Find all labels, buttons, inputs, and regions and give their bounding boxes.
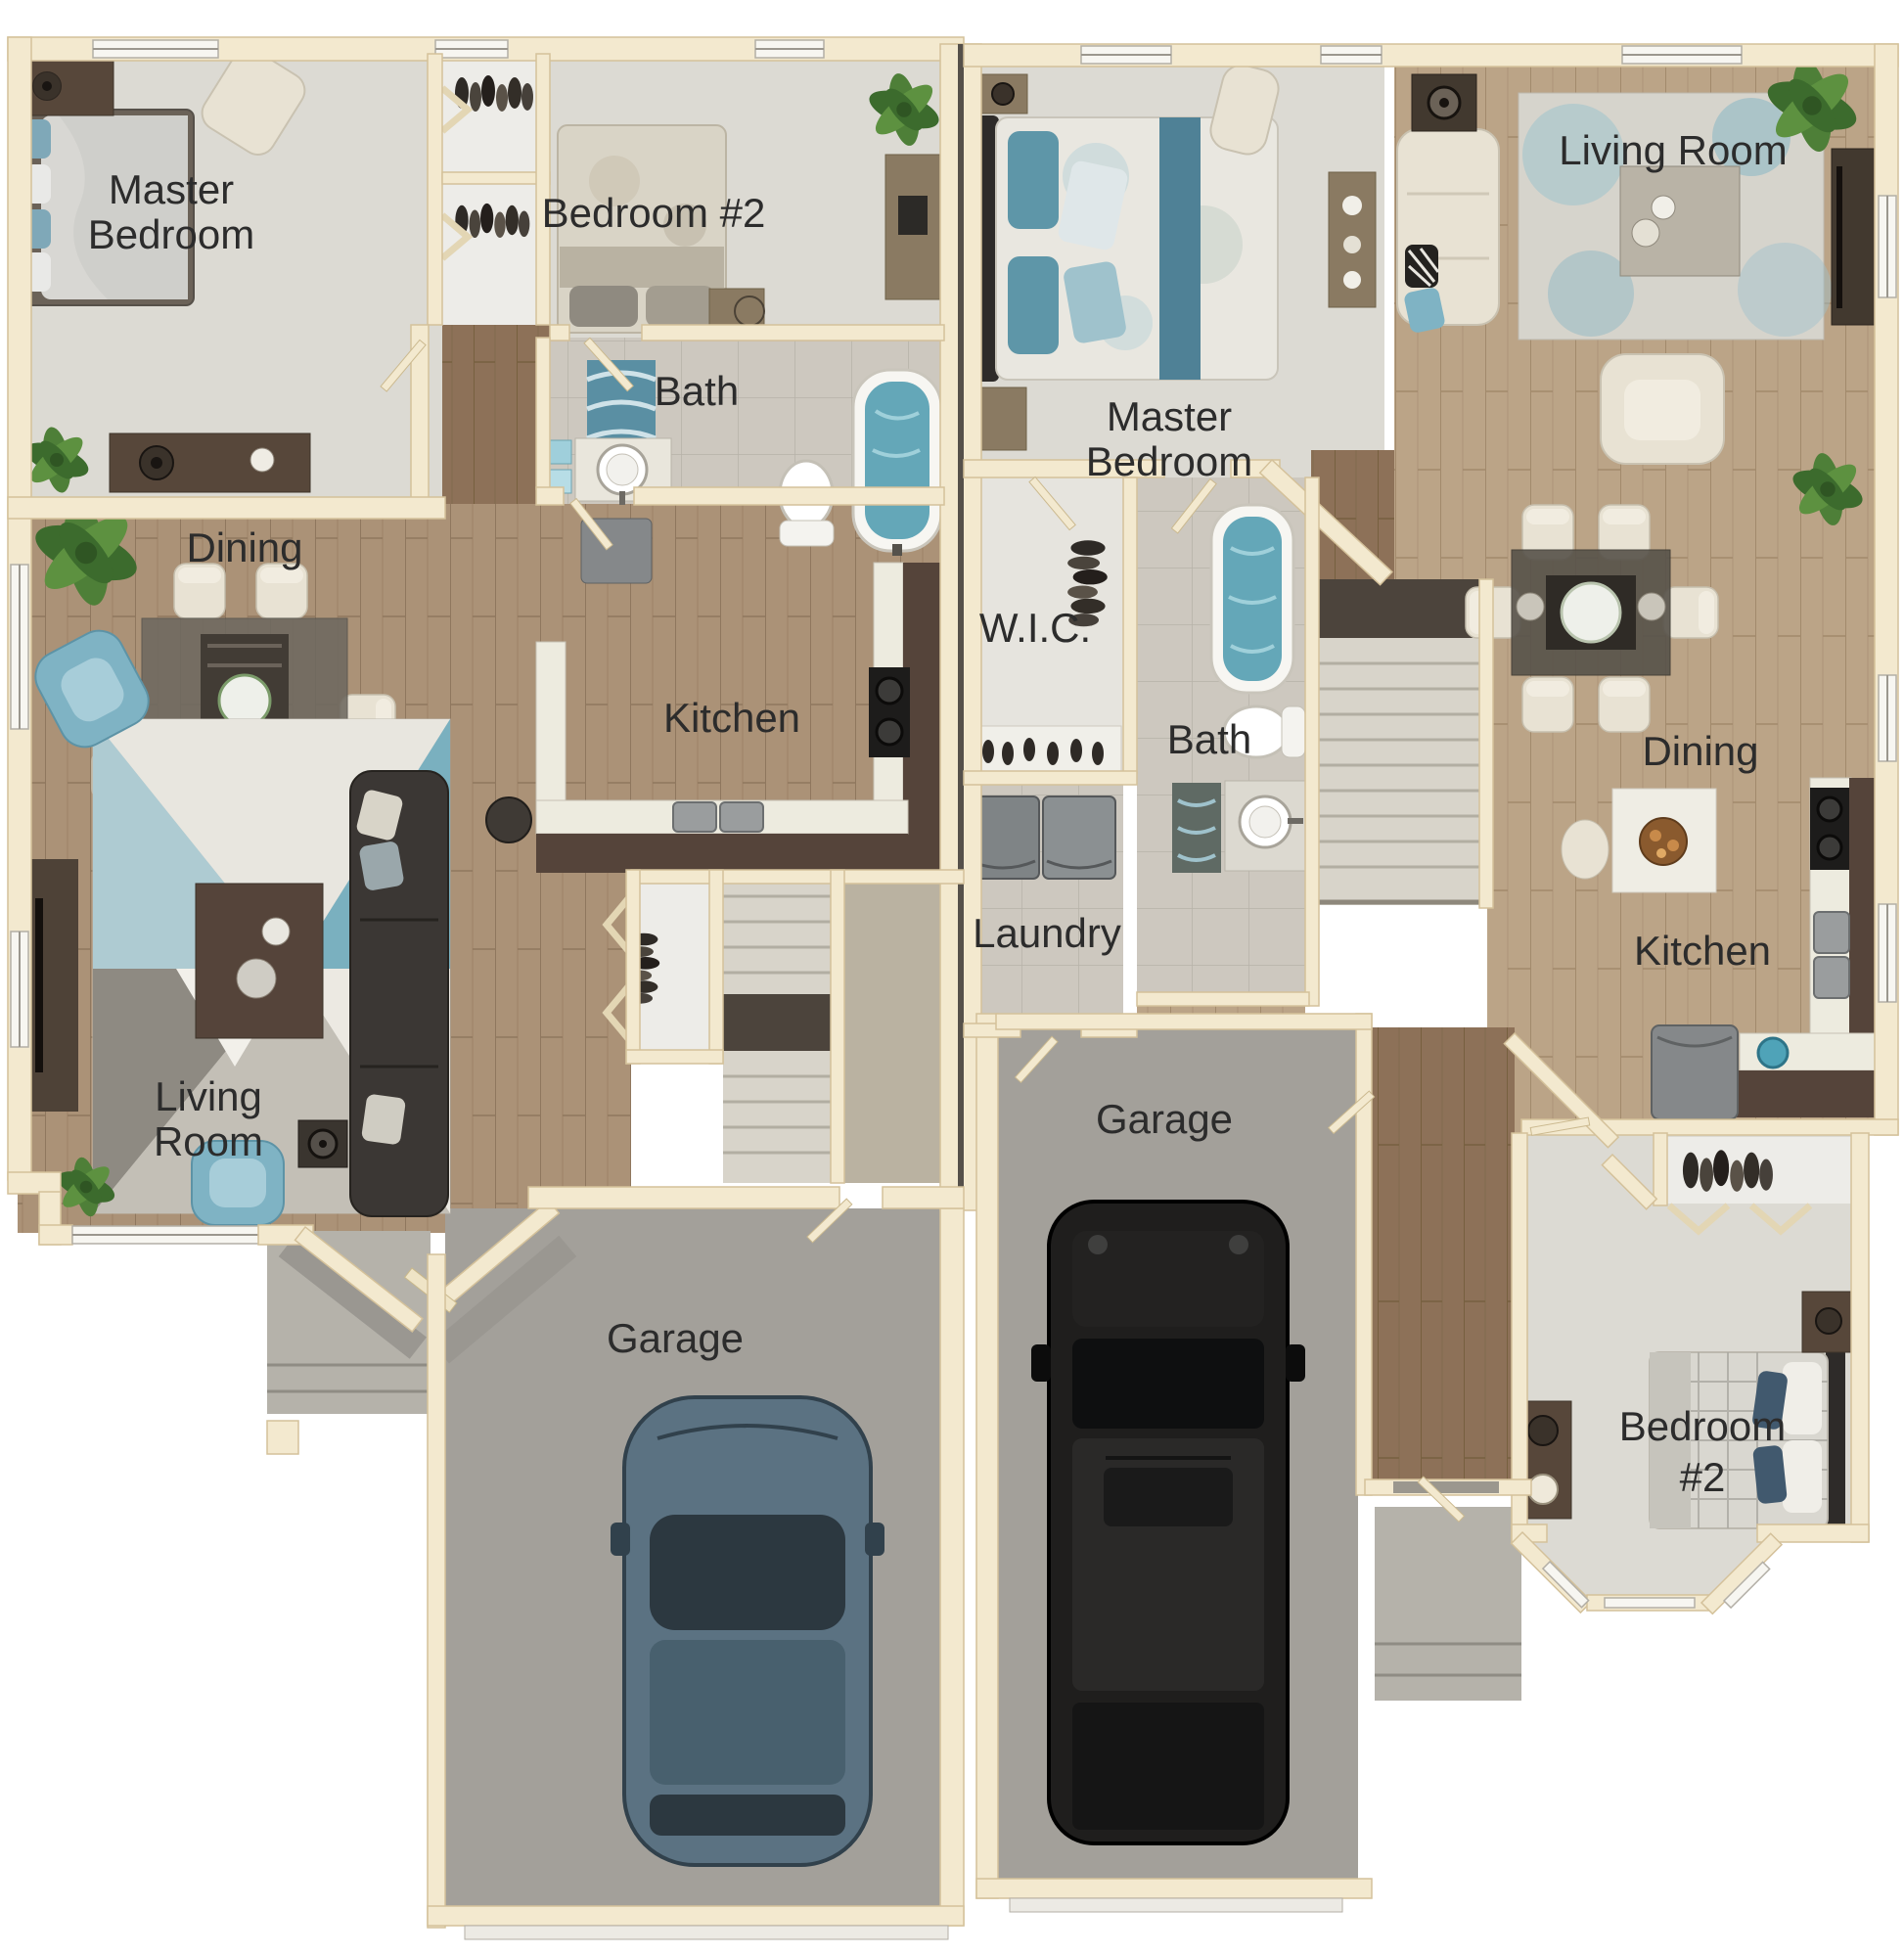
label-left-master-1: Master [109, 166, 234, 212]
left-fireplace [298, 1120, 347, 1167]
left-porch-post [267, 1421, 298, 1454]
floor-plan-canvas: Master Bedroom Bedroom #2 Bath Dining Ki… [0, 0, 1904, 1955]
floor-plan: Master Bedroom Bedroom #2 Bath Dining Ki… [0, 0, 1904, 1955]
label-right-dining: Dining [1642, 728, 1758, 774]
label-right-laundry: Laundry [973, 910, 1121, 956]
right-porch-floor [1375, 1507, 1521, 1701]
left-stair-hall-floor [831, 870, 944, 1183]
label-right-garage: Garage [1096, 1096, 1233, 1142]
right-sofa [1397, 129, 1499, 334]
left-hall-floor [442, 325, 550, 504]
label-left-living-2: Room [154, 1118, 263, 1164]
right-bed2-east-wall [1851, 1133, 1869, 1542]
left-master-south-wall [8, 497, 445, 519]
label-right-bedroom2-1: Bedroom [1619, 1403, 1786, 1449]
right-garage-left-wall [976, 1014, 998, 1898]
left-sofa [350, 771, 448, 1216]
right-kettle [1758, 1038, 1788, 1068]
label-right-wic: W.I.C. [979, 605, 1091, 651]
left-foyer-garage-wall [528, 1187, 839, 1208]
label-left-garage: Garage [607, 1315, 744, 1361]
left-tub [853, 370, 941, 556]
right-hall-west-wall [1356, 1014, 1372, 1495]
label-left-master-2: Bedroom [88, 211, 254, 257]
right-master-bed [974, 115, 1278, 382]
left-garage-right-wall [940, 1208, 964, 1926]
label-right-living: Living Room [1559, 127, 1787, 173]
left-garage-door [465, 1926, 948, 1939]
label-left-living-1: Living [155, 1073, 262, 1119]
label-right-bath: Bath [1167, 716, 1251, 762]
left-bedroom2-wall [642, 325, 944, 341]
left-bath-south-wall [634, 487, 944, 505]
right-front-door [1393, 1481, 1499, 1493]
label-right-master-2: Bedroom [1086, 438, 1252, 484]
right-garage-door [1010, 1898, 1342, 1912]
right-wic-south-wall [964, 771, 1137, 785]
right-garage-bottom-wall [976, 1879, 1372, 1898]
label-left-dining: Dining [186, 524, 302, 570]
left-garage-left-wall [428, 1254, 445, 1928]
label-left-bath: Bath [655, 368, 739, 414]
right-nightstand-bottom [975, 387, 1026, 450]
left-garage-bottom-wall [428, 1906, 964, 1926]
right-bath-east-wall [1305, 477, 1319, 1006]
right-stairs-east-wall [1479, 579, 1493, 908]
label-right-bedroom2-2: #2 [1680, 1454, 1726, 1500]
label-right-master-1: Master [1107, 393, 1232, 439]
label-right-kitchen: Kitchen [1634, 928, 1771, 974]
left-bar-stool [486, 797, 531, 842]
left-garage-car [611, 1397, 884, 1865]
right-garage-truck [1031, 1202, 1305, 1843]
label-left-bedroom2: Bedroom #2 [542, 190, 766, 236]
right-entry-hall-floor [1372, 1027, 1515, 1483]
right-garage-top-wall [996, 1014, 1372, 1029]
left-tv-console [27, 859, 78, 1112]
right-bath-south-wall [1137, 992, 1309, 1006]
label-left-kitchen: Kitchen [663, 695, 800, 741]
left-kitchen-south-wall [631, 870, 964, 884]
